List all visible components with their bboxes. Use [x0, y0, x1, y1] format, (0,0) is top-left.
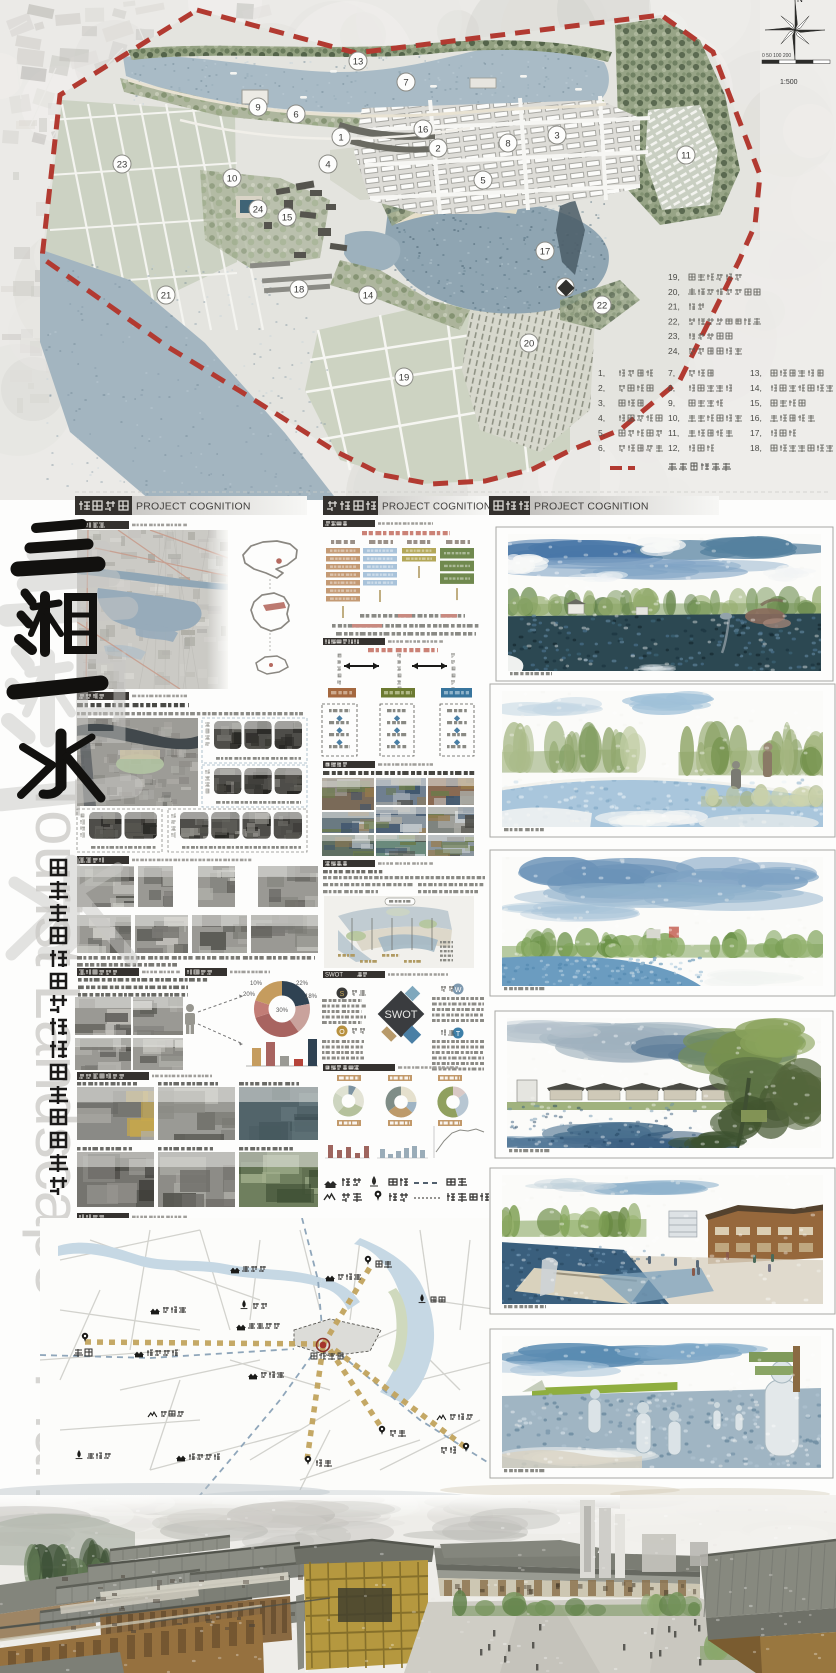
svg-text:19: 19: [399, 372, 410, 383]
svg-text:20%: 20%: [243, 992, 256, 998]
svg-text:21: 21: [161, 290, 172, 301]
svg-text:S: S: [340, 991, 345, 998]
svg-text:22%: 22%: [296, 981, 309, 987]
svg-text:13: 13: [353, 56, 364, 67]
svg-text:PROJECT COGNITION: PROJECT COGNITION: [136, 501, 251, 513]
svg-text:18,: 18,: [750, 443, 762, 453]
svg-text:PROJECT COGNITION: PROJECT COGNITION: [382, 502, 491, 513]
svg-text:4,: 4,: [598, 413, 605, 423]
svg-text:18%: 18%: [305, 994, 318, 1000]
svg-text:2,: 2,: [598, 383, 605, 393]
svg-text:2: 2: [435, 143, 440, 154]
svg-text:1:500: 1:500: [780, 79, 798, 86]
svg-text:16: 16: [418, 124, 429, 135]
svg-text:N: N: [797, 0, 803, 4]
svg-text:3,: 3,: [598, 398, 605, 408]
svg-text:1: 1: [338, 132, 343, 143]
svg-text:7,: 7,: [668, 368, 675, 378]
svg-text:3: 3: [554, 130, 559, 141]
svg-text:5,: 5,: [598, 428, 605, 438]
svg-text:0 50 100 200: 0 50 100 200: [762, 53, 791, 59]
svg-text:6: 6: [293, 109, 298, 120]
svg-text:8: 8: [505, 138, 510, 149]
svg-text:14,: 14,: [750, 383, 762, 393]
svg-text:18: 18: [294, 284, 305, 295]
svg-text:SWOT: SWOT: [325, 973, 343, 979]
svg-text:10: 10: [227, 173, 238, 184]
svg-text:11: 11: [681, 150, 691, 161]
svg-text:7: 7: [403, 77, 408, 88]
svg-text:22: 22: [597, 300, 608, 311]
svg-text:9: 9: [255, 102, 260, 113]
svg-text:6,: 6,: [598, 443, 605, 453]
svg-text:17: 17: [540, 246, 551, 257]
svg-text:20,: 20,: [668, 287, 680, 297]
svg-text:17,: 17,: [750, 428, 762, 438]
svg-text:1,: 1,: [598, 368, 605, 378]
svg-text:13,: 13,: [750, 368, 762, 378]
svg-text:9,: 9,: [668, 398, 675, 408]
svg-text:23,: 23,: [668, 331, 680, 341]
svg-text:16,: 16,: [750, 413, 762, 423]
svg-text:10%: 10%: [250, 981, 263, 987]
svg-text:T: T: [456, 1031, 461, 1038]
svg-text:PROJECT COGNITION: PROJECT COGNITION: [534, 501, 649, 513]
svg-text:15: 15: [282, 212, 293, 223]
svg-text:22,: 22,: [668, 316, 680, 326]
svg-text:24: 24: [253, 204, 264, 215]
svg-text:30%: 30%: [276, 1008, 289, 1014]
svg-text:O: O: [339, 1029, 345, 1036]
svg-text:4: 4: [325, 159, 330, 170]
svg-text:8,: 8,: [668, 383, 675, 393]
svg-text:W: W: [455, 987, 462, 994]
svg-text:10,: 10,: [668, 413, 680, 423]
svg-text:24,: 24,: [668, 346, 680, 356]
svg-text:12,: 12,: [668, 443, 680, 453]
svg-text:14: 14: [363, 290, 374, 301]
svg-text:11,: 11,: [668, 428, 679, 438]
svg-text:21,: 21,: [668, 302, 680, 312]
svg-text:23: 23: [117, 159, 128, 170]
svg-text:5: 5: [480, 175, 485, 186]
svg-text:20: 20: [524, 338, 535, 349]
svg-text:15,: 15,: [750, 398, 762, 408]
svg-text:SWOT: SWOT: [385, 1009, 418, 1021]
svg-text:19,: 19,: [668, 272, 680, 282]
